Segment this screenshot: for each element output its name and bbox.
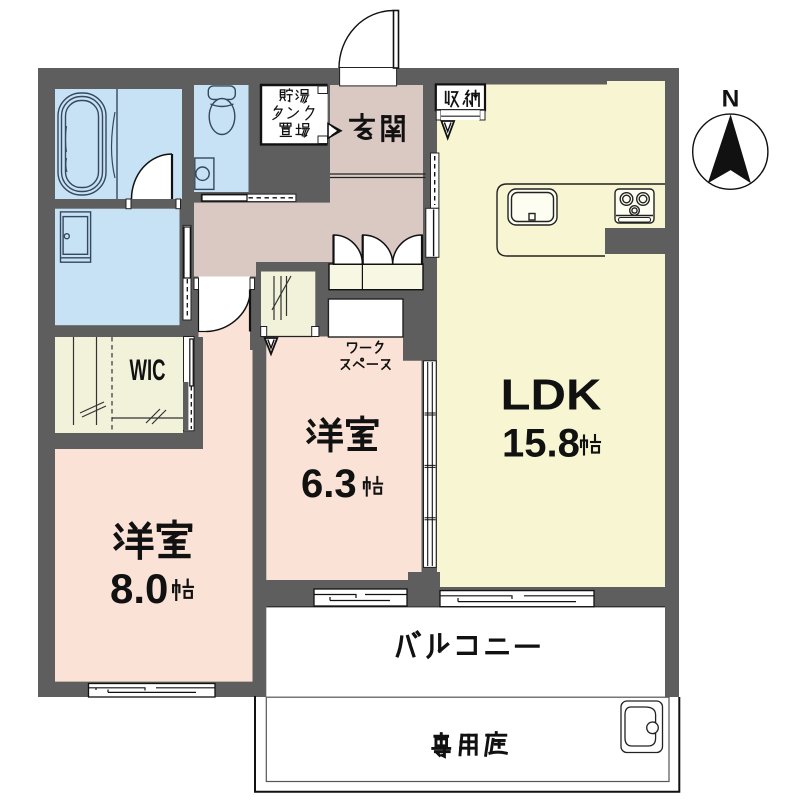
svg-text:8.0: 8.0	[110, 565, 168, 612]
svg-text:WIC: WIC	[130, 354, 166, 387]
svg-text:6.3: 6.3	[301, 462, 357, 506]
svg-text:N: N	[722, 86, 740, 113]
svg-text:LDK: LDK	[501, 371, 602, 420]
svg-text:15.8: 15.8	[502, 422, 580, 466]
